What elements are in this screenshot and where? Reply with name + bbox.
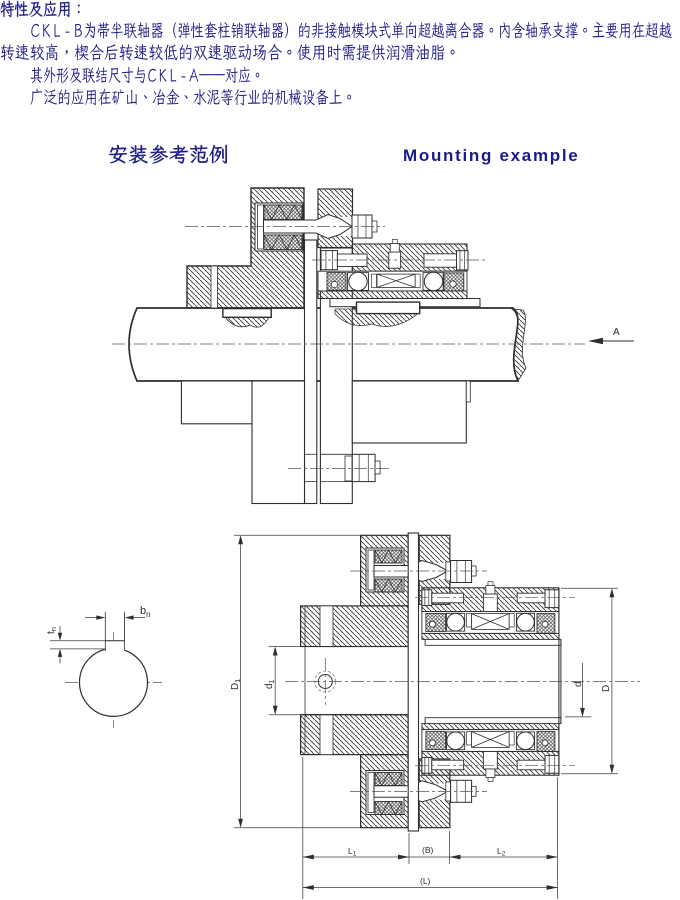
svg-text:D: D [601, 685, 612, 692]
svg-text:d1: d1 [264, 679, 276, 689]
svg-text:bn: bn [140, 605, 151, 619]
svg-text:L2: L2 [497, 846, 506, 858]
svg-text:A: A [613, 327, 620, 338]
svg-text:tn: tn [46, 627, 58, 634]
svg-text:d: d [573, 681, 584, 687]
svg-text:(L): (L) [420, 876, 431, 886]
svg-text:Mounting example: Mounting example [403, 146, 579, 165]
svg-text:D1: D1 [230, 679, 242, 690]
svg-text:L1: L1 [348, 846, 357, 858]
svg-text:(B): (B) [422, 845, 434, 855]
